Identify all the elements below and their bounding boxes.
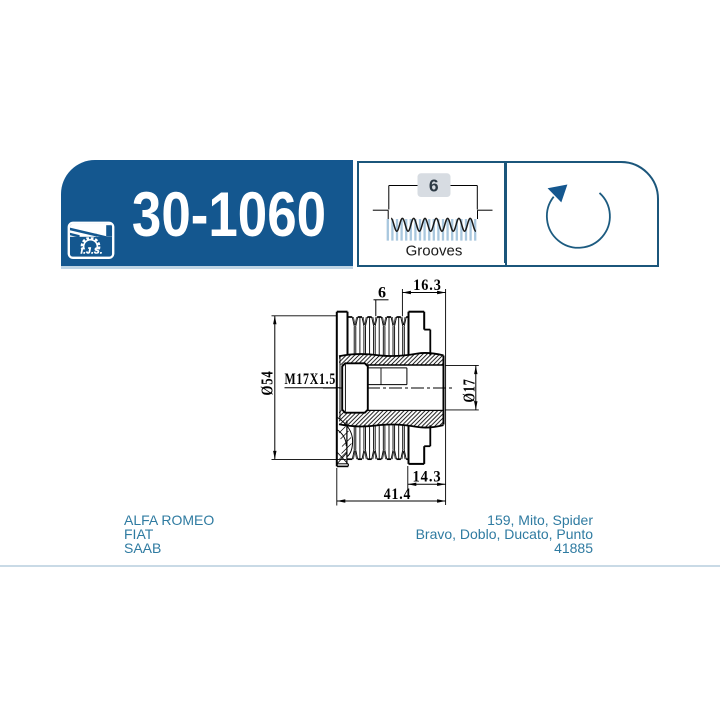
svg-text:6: 6 [378,285,387,302]
svg-text:Ø54: Ø54 [258,371,277,396]
svg-text:M17X1.5: M17X1.5 [285,371,337,388]
svg-text:41.4: 41.4 [384,486,412,503]
